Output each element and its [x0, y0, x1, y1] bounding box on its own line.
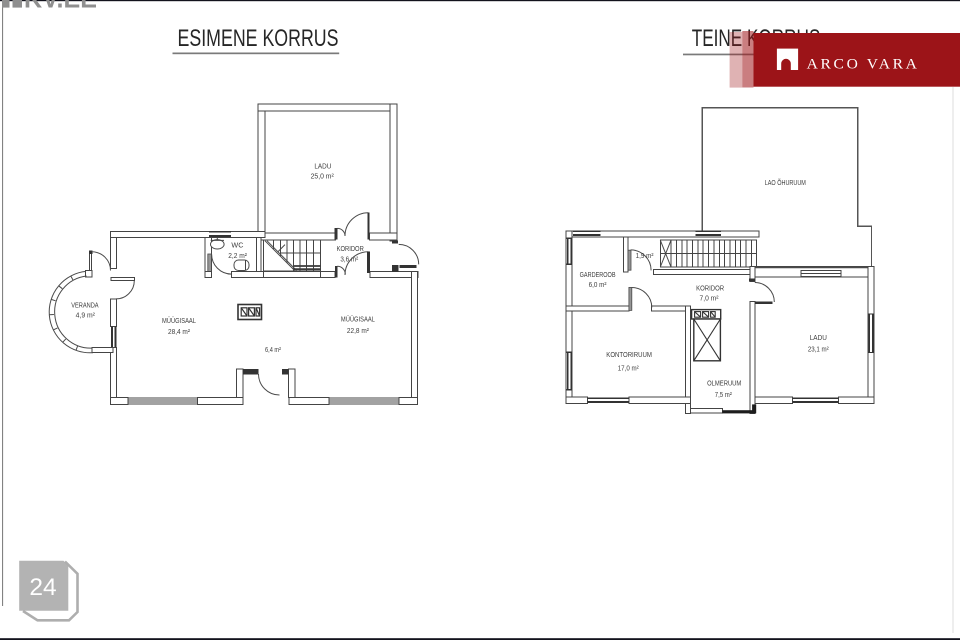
svg-text:23,1 m²: 23,1 m²	[808, 344, 829, 353]
svg-text:17,0 m²: 17,0 m²	[618, 363, 639, 372]
svg-text:GARDEROOB: GARDEROOB	[580, 270, 616, 279]
svg-text:LADU: LADU	[810, 333, 827, 342]
svg-text:4,9 m²: 4,9 m²	[76, 310, 96, 319]
svg-text:7,0 m²: 7,0 m²	[700, 294, 720, 303]
svg-text:KONTORIRUUM: KONTORIRUUM	[606, 350, 652, 359]
svg-text:LAO ÕHURUUM: LAO ÕHURUUM	[765, 178, 806, 187]
svg-text:MÜÜGISAAL: MÜÜGISAAL	[162, 316, 196, 325]
svg-text:6,4 m²: 6,4 m²	[265, 345, 281, 354]
svg-text:24: 24	[29, 574, 56, 601]
svg-text:2,2 m²: 2,2 m²	[228, 251, 247, 260]
svg-text:WC: WC	[231, 241, 243, 250]
svg-text:28,4 m²: 28,4 m²	[168, 327, 191, 336]
svg-text:OLMERUUM: OLMERUUM	[707, 379, 741, 388]
svg-text:25,0 m²: 25,0 m²	[311, 172, 335, 181]
svg-text:22,8 m²: 22,8 m²	[347, 326, 370, 335]
svg-text:ESIMENE KORRUS: ESIMENE KORRUS	[178, 25, 339, 52]
svg-text:1,9 m²: 1,9 m²	[636, 251, 654, 260]
svg-text:MÜÜGISAAL: MÜÜGISAAL	[341, 315, 375, 324]
svg-text:ARCO VARA: ARCO VARA	[807, 57, 920, 73]
svg-text:7,5 m²: 7,5 m²	[715, 390, 733, 399]
svg-text:VERANDA: VERANDA	[71, 301, 99, 310]
svg-text:KORIDOR: KORIDOR	[337, 244, 364, 253]
svg-text:KORIDOR: KORIDOR	[696, 284, 724, 293]
svg-text:LADU: LADU	[314, 161, 331, 170]
svg-text:6,0 m²: 6,0 m²	[589, 280, 607, 289]
svg-text:KV.EE: KV.EE	[24, 0, 97, 14]
